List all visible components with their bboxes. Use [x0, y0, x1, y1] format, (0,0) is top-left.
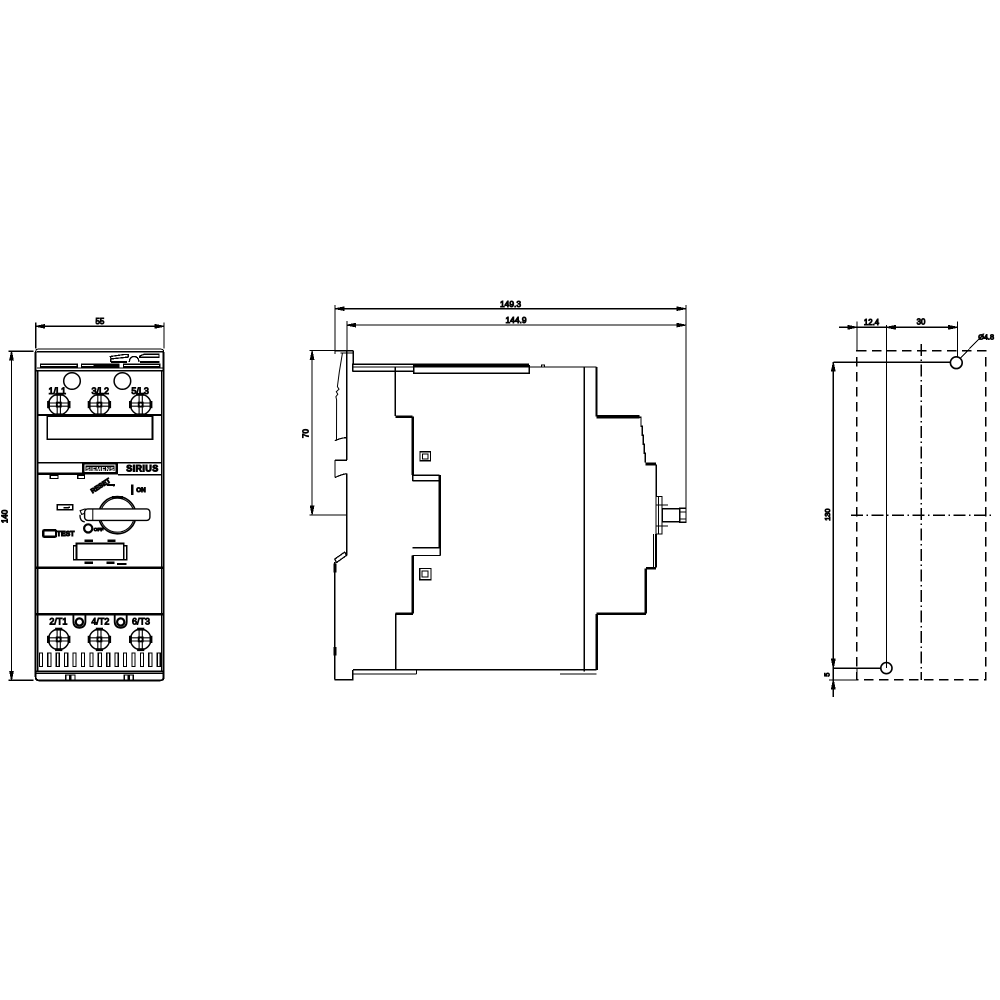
svg-text:12.4: 12.4 [864, 318, 880, 327]
svg-text:OFF: OFF [94, 527, 104, 533]
svg-text:55: 55 [95, 317, 104, 326]
svg-text:RESET: RESET [90, 477, 112, 495]
svg-text:TEST: TEST [57, 531, 75, 538]
svg-text:SIEMENS: SIEMENS [86, 467, 114, 473]
svg-text:ON: ON [136, 487, 146, 494]
svg-text:6/T3: 6/T3 [132, 617, 150, 627]
svg-text:149.3: 149.3 [500, 299, 521, 309]
svg-text:70: 70 [301, 429, 310, 438]
svg-text:30: 30 [917, 318, 926, 327]
svg-text:4/T2: 4/T2 [91, 617, 109, 627]
svg-text:Ø4.8: Ø4.8 [978, 333, 994, 342]
svg-text:5: 5 [824, 673, 831, 677]
svg-text:SIRIUS: SIRIUS [126, 464, 158, 474]
svg-text:2/T1: 2/T1 [49, 617, 67, 627]
svg-text:140: 140 [1, 509, 10, 523]
svg-text:130: 130 [823, 509, 832, 521]
svg-text:144.9: 144.9 [506, 315, 527, 325]
